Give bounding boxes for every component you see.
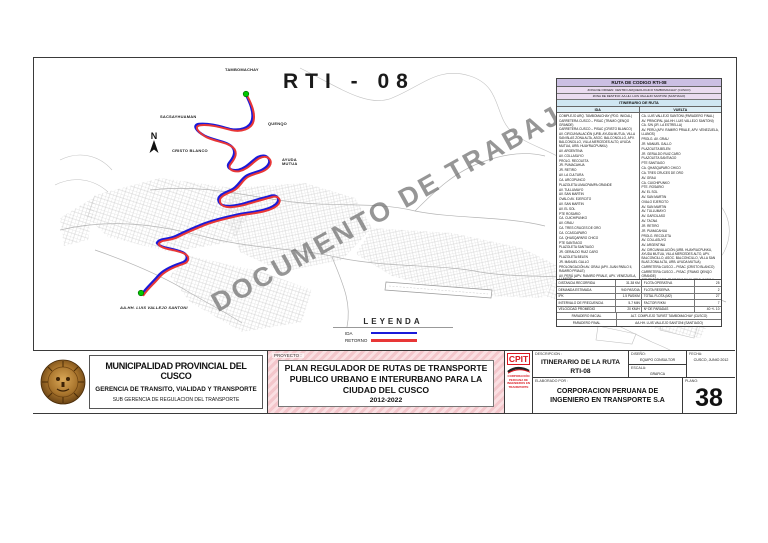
route-table-title: RUTA DE CODIGO RTI-08 <box>557 79 721 87</box>
stat-label: FACTOR R/KM <box>642 300 694 307</box>
stat-label: TOTAL FLOTA (M2) <box>642 294 694 301</box>
stat-value: 940 PAS/DIA <box>616 287 642 294</box>
plano-number: 38 <box>683 384 735 413</box>
itinerary-ida-list: COMPLEJO ARQ. TAMBOMACHAY (PDO. INICIAL)… <box>557 113 640 279</box>
project-title-line1: PLAN REGULADOR DE RUTAS DE TRANSPORTE <box>279 363 493 374</box>
legend-row-retorno: RETORNO <box>345 338 453 343</box>
fecha-value: CUSCO, JUNIO 2012 <box>687 358 735 362</box>
north-arrow-icon <box>146 140 162 155</box>
stat-value: 31.38 KM <box>616 280 642 287</box>
itinerary-item: AV. PERÚ (APV. RAMIRO PRIALE, APV. VENEZ… <box>642 129 720 137</box>
route-info-table: RUTA DE CODIGO RTI-08 ZONA DE ORIGEN: CE… <box>556 78 722 327</box>
north-label: N <box>146 132 162 140</box>
stat-value: 1.5 PAS/KM <box>616 294 642 301</box>
description-line2: RTI-08 <box>533 368 628 377</box>
itinerary-column-headers: IDA VUELTA <box>557 107 721 114</box>
itinerary-item: AV. CIRCUNVALACIÓN (URB. AYUDA MUTUA, VI… <box>559 133 637 149</box>
escala-label: ESCALA: <box>631 366 646 370</box>
diseno-cell: DISEÑO: EQUIPO CONSULTOR <box>629 351 686 364</box>
plano-cell: PLANO: 38 <box>683 378 735 413</box>
municipality-seal-icon <box>40 359 86 405</box>
column-header-vuelta: VUELTA <box>640 107 722 113</box>
map-label-quenqo: QUENQO <box>268 121 287 126</box>
stat-label: IPK <box>557 294 616 301</box>
legend-row-ida: IDA <box>345 331 453 336</box>
legend-ida-label: IDA <box>345 331 371 336</box>
map-label-ayuda-mutua: AYUDA MUTUA <box>282 158 304 167</box>
legend-title: LEYENDA <box>333 317 453 328</box>
stat-label: FLOTA RESERVA <box>642 287 694 294</box>
elaborado-cell: ELABORADO POR : CORPORACION PERUANA DE I… <box>533 378 683 413</box>
plan-sheet: RTI - 08 DOCUMENTO DE TRABAJO N TAMBOMAC… <box>0 0 768 543</box>
stat-label: FLOTA OPERATIVA <box>642 280 694 287</box>
legend-retorno-swatch <box>371 339 417 341</box>
title-block: MUNICIPALIDAD PROVINCIAL DEL CUSCO GEREN… <box>33 350 735 413</box>
cpit-org-name: CORPORACIÓN PERUANA DE INGENIEROS EN TRA… <box>505 375 532 390</box>
stat-label: INTERVALO DE FRECUENCIA <box>557 300 616 307</box>
north-compass: N <box>146 132 162 160</box>
map-label-cristo-blanco: CRISTO BLANCO <box>172 148 208 153</box>
municipality-text-box: MUNICIPALIDAD PROVINCIAL DEL CUSCO GEREN… <box>89 355 263 409</box>
stat-label: DEMANDA ESTIMADA <box>557 287 616 294</box>
escala-cell: ESCALA: GRAFICA <box>629 364 686 378</box>
project-cell: PROYECTO : PLAN REGULADOR DE RUTAS DE TR… <box>268 351 505 413</box>
stat-value: 2 <box>695 287 721 294</box>
stat-value: 27 <box>695 294 721 301</box>
municipality-gerencia: GERENCIA DE TRANSITO, VIALIDAD Y TRANSPO… <box>90 386 262 393</box>
legend-ida-swatch <box>371 332 417 334</box>
fecha-label: FECHA: <box>689 352 702 356</box>
cpit-swoosh-icon <box>506 365 532 374</box>
itinerary-body: COMPLEJO ARQ. TAMBOMACHAY (PDO. INICIAL)… <box>557 113 721 279</box>
itinerary-item: AV. CIRCUNVALACIÓN (URB. HUAYRACPUNKU, A… <box>642 249 720 265</box>
map-label-vallejo-santoni: AA.HH. LUIS VALLEJO SANTONI <box>120 305 188 310</box>
map-label-tambomachay: TAMBOMACHAY <box>225 67 259 72</box>
paradero-final-row: PARADERO FINAL AA.HH. LUIS VALLEJO SANTO… <box>557 320 721 326</box>
project-title-line2: PUBLICO URBANO E INTERURBANO PARA LA <box>279 374 493 385</box>
paradero-inicial-value: ALT. COMPLEJO TURIST TAMBOMACHAY (CUSCO) <box>617 313 721 319</box>
itinerary-item: CARRETERA CUSCO – PISAC (TRAMO QENQO GRA… <box>559 120 637 128</box>
project-title-box: PLAN REGULADOR DE RUTAS DE TRANSPORTE PU… <box>278 360 494 407</box>
itinerary-vuelta-list: CA. LUIS VALLEJO SANTONI (PARADERO FINAL… <box>640 113 722 279</box>
diseno-label: DISEÑO: <box>631 352 646 356</box>
stat-value: 25 <box>695 280 721 287</box>
stat-value: 40 +/- 10 <box>695 307 721 314</box>
paradero-final-label: PARADERO FINAL <box>557 320 617 326</box>
municipality-subgerencia: SUB GERENCIA DE REGULACION DEL TRANSPORT… <box>90 397 262 403</box>
fecha-cell: FECHA: CUSCO, JUNIO 2012 <box>687 351 735 377</box>
stat-label: Nº DE PARADAS <box>642 307 694 314</box>
project-label: PROYECTO : <box>272 353 304 358</box>
itinerary-item: CARRETERA CUSCO – PISAC (TRAMO QENQO GRA… <box>642 271 720 279</box>
stat-value: 7 <box>695 300 721 307</box>
project-years: 2012-2022 <box>279 397 493 404</box>
project-title-line3: CIUDAD DEL CUSCO <box>279 385 493 396</box>
municipality-cell: MUNICIPALIDAD PROVINCIAL DEL CUSCO GEREN… <box>33 351 268 413</box>
municipality-name: MUNICIPALIDAD PROVINCIAL DEL CUSCO <box>90 361 262 381</box>
legend: LEYENDA IDA RETORNO <box>333 317 453 343</box>
paradero-inicial-row: PARADERO INICIAL ALT. COMPLEJO TURIST TA… <box>557 313 721 320</box>
diseno-escala-column: DISEÑO: EQUIPO CONSULTOR ESCALA: GRAFICA <box>629 351 687 377</box>
itinerary-item: PROLONGACIÓN AV. GRAU (APV. JUAN PABLO I… <box>559 266 637 274</box>
elaborado-line2: INGENIERO EN TRANSPORTE S.A <box>533 396 682 405</box>
route-code-title: RTI - 08 <box>283 70 415 94</box>
elaborado-line1: CORPORACION PERUANA DE <box>533 387 682 396</box>
diseno-value: EQUIPO CONSULTOR <box>629 358 686 362</box>
itinerary-item: AV. PERÚ (APV. RAMIRO PRIALE, APV. VENEZ… <box>559 275 637 280</box>
paradero-final-value: AA.HH. LUIS VALLEJO SANTONI (SANTIAGO) <box>617 320 721 326</box>
stat-value: 20 KM/H <box>616 307 642 314</box>
paradero-inicial-label: PARADERO INICIAL <box>557 313 617 319</box>
stat-value: 5-7 MIN <box>616 300 642 307</box>
plano-label: PLANO: <box>685 379 698 383</box>
map-label-sacsayhuaman: SACSAYHUAMAN <box>160 114 196 119</box>
title-block-right: DESCRIPCION : ITINERARIO DE LA RUTA RTI-… <box>533 351 735 413</box>
legend-retorno-label: RETORNO <box>345 338 371 343</box>
cpit-logo-cell: CPIT CORPORACIÓN PERUANA DE INGENIEROS E… <box>505 351 533 413</box>
stat-label: DISTANCIA RECORRIDA <box>557 280 616 287</box>
itinerary-header: ITINERARIO DE RUTA <box>557 100 721 107</box>
column-header-ida: IDA <box>557 107 640 113</box>
route-stats-grid: DISTANCIA RECORRIDA31.38 KMFLOTA OPERATI… <box>557 279 721 313</box>
description-cell: DESCRIPCION : ITINERARIO DE LA RUTA RTI-… <box>533 351 629 377</box>
cpit-acronym: CPIT <box>507 353 530 365</box>
escala-value: GRAFICA <box>629 372 686 376</box>
description-line1: ITINERARIO DE LA RUTA <box>533 359 628 368</box>
description-label: DESCRIPCION : <box>535 352 562 356</box>
stat-label: VELOCIDAD PROMEDIO <box>557 307 616 314</box>
elaborado-label: ELABORADO POR : <box>535 379 568 383</box>
